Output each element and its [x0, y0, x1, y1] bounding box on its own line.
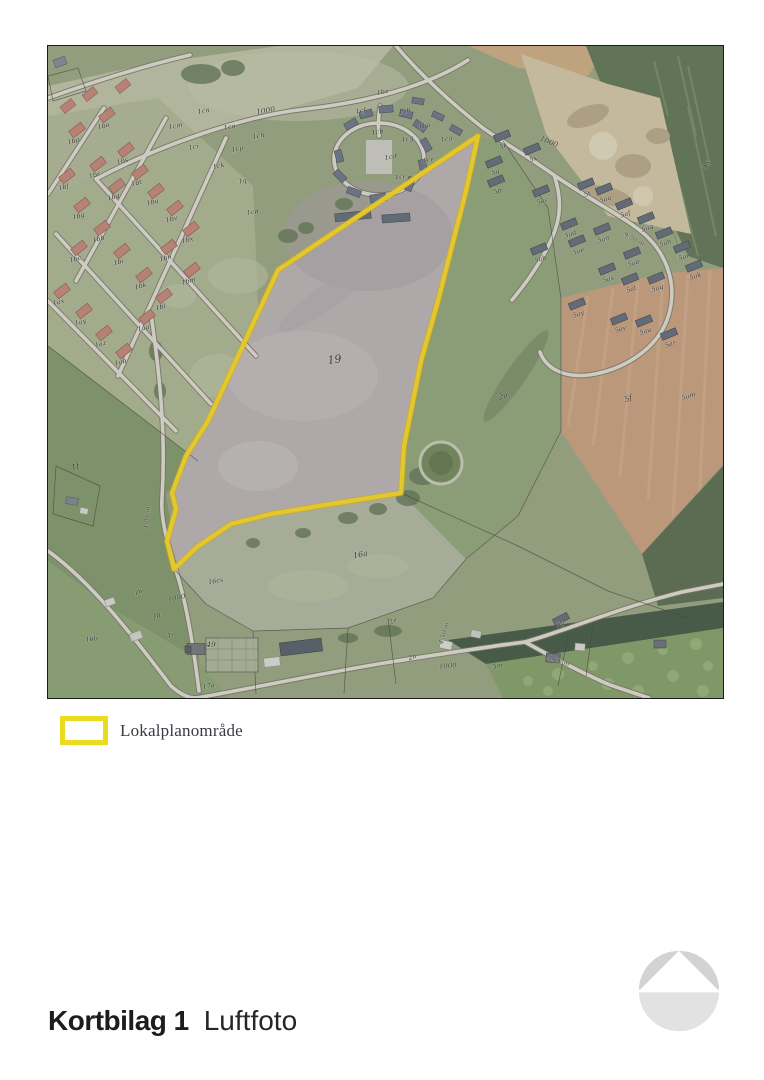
noise-overlay: [48, 46, 723, 698]
legend-label: Lokalplanområde: [120, 721, 243, 741]
footer-title: Kortbilag 1Luftfoto: [48, 1005, 297, 1037]
legend-swatch-lokalplanomraade: [60, 716, 108, 745]
publisher-logo: [636, 948, 722, 1034]
aerial-photo: 192a5f16a1f5s16cs16b1h481i4917a2e2h5g5m5…: [48, 46, 723, 698]
map-frame: 192a5f16a1f5s16cs16b1h481i4917a2e2h5g5m5…: [47, 45, 724, 699]
legend: Lokalplanområde: [60, 716, 243, 745]
doc-subtitle: Luftfoto: [204, 1005, 297, 1036]
doc-title: Kortbilag 1: [48, 1005, 189, 1036]
page: 192a5f16a1f5s16cs16b1h481i4917a2e2h5g5m5…: [0, 0, 764, 1080]
